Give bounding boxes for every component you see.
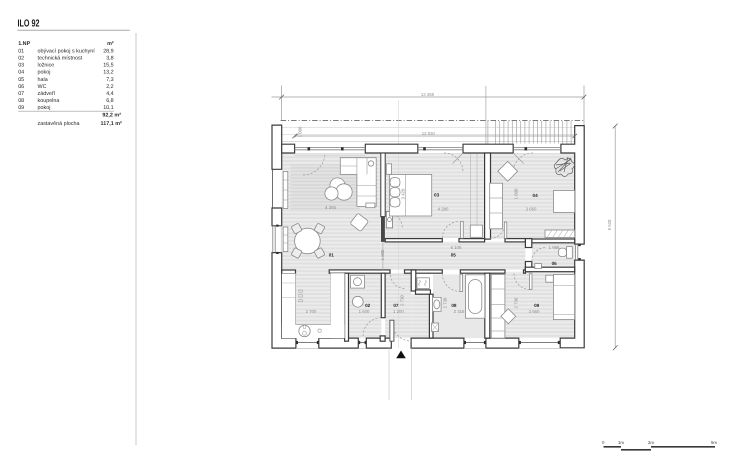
svg-text:07: 07 [18,91,24,97]
svg-text:5m: 5m [711,440,717,445]
svg-text:15,5: 15,5 [103,63,114,69]
svg-text:28,9: 28,9 [103,49,114,55]
svg-text:92,2 m²: 92,2 m² [102,113,121,119]
svg-text:2 730: 2 730 [513,297,518,308]
svg-text:obývací pokoj s kuchyní: obývací pokoj s kuchyní [38,49,96,55]
svg-text:3 660: 3 660 [529,309,540,314]
svg-text:06: 06 [18,84,24,90]
svg-text:hala: hala [38,77,48,83]
svg-text:1.NP: 1.NP [18,41,30,47]
svg-text:05: 05 [18,77,24,83]
svg-text:01: 01 [18,49,24,55]
svg-text:3,8: 3,8 [106,56,114,62]
svg-text:13,2: 13,2 [103,70,114,76]
svg-text:1 600: 1 600 [514,188,519,199]
svg-text:3 420: 3 420 [400,188,405,199]
svg-text:zádveří: zádveří [38,91,56,97]
svg-text:9 520: 9 520 [607,219,612,230]
svg-text:2,2: 2,2 [106,84,114,90]
svg-text:1m: 1m [618,440,624,445]
svg-text:pokoj: pokoj [38,105,51,111]
svg-text:2 730: 2 730 [442,297,447,308]
svg-text:02: 02 [365,303,371,308]
svg-text:zastavěná plocha: zastavěná plocha [38,121,80,127]
svg-text:2 315: 2 315 [454,309,465,314]
svg-text:7,3: 7,3 [106,77,114,83]
svg-text:09: 09 [534,303,540,308]
svg-text:07: 07 [393,303,399,308]
svg-text:ložnice: ložnice [38,63,55,69]
svg-text:12 530: 12 530 [422,131,436,136]
svg-text:09: 09 [18,105,24,111]
svg-text:WC: WC [38,84,47,90]
svg-text:ILO 92: ILO 92 [18,19,40,30]
svg-text:4,4: 4,4 [106,91,114,97]
svg-text:08: 08 [18,98,24,104]
svg-text:0: 0 [602,440,605,445]
svg-text:6,8: 6,8 [106,98,114,104]
svg-text:1 985: 1 985 [549,245,560,250]
svg-text:6 105: 6 105 [451,245,462,250]
svg-text:2 730: 2 730 [400,295,405,306]
svg-text:13 355: 13 355 [421,92,435,97]
svg-text:04: 04 [18,70,24,76]
svg-text:koupelna: koupelna [38,98,60,104]
svg-text:1 600: 1 600 [359,309,370,314]
svg-text:2 700: 2 700 [306,309,317,314]
svg-text:1 800: 1 800 [380,249,385,260]
svg-text:4 265: 4 265 [325,205,336,210]
svg-text:2m: 2m [648,440,654,445]
svg-text:1 000: 1 000 [298,126,303,137]
svg-text:08: 08 [451,303,457,308]
svg-text:03: 03 [18,63,24,69]
svg-text:05: 05 [451,252,457,257]
svg-text:4 280: 4 280 [438,207,449,212]
svg-text:10,1: 10,1 [103,105,114,111]
svg-text:04: 04 [533,193,539,198]
svg-text:m²: m² [107,41,114,47]
svg-text:3 660: 3 660 [526,207,537,212]
svg-text:01: 01 [329,252,335,257]
svg-text:02: 02 [18,56,24,62]
svg-text:117,1 m²: 117,1 m² [101,121,122,127]
svg-text:06: 06 [552,261,558,266]
svg-text:technická místnost: technická místnost [38,56,83,62]
svg-text:03: 03 [434,192,440,197]
svg-text:pokoj: pokoj [38,70,51,76]
svg-text:1 200: 1 200 [393,309,404,314]
